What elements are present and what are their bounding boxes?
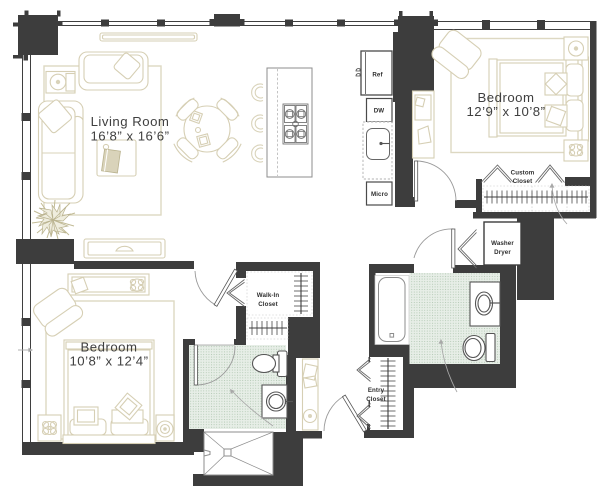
svg-text:DW: DW [374, 108, 385, 115]
svg-text:10’8” x 12’4”: 10’8” x 12’4” [69, 354, 148, 369]
svg-text:12’9” x 10’8”: 12’9” x 10’8” [466, 104, 545, 119]
svg-text:Dryer: Dryer [494, 249, 511, 256]
svg-text:16’8” x 16’6”: 16’8” x 16’6” [90, 129, 169, 144]
svg-text:Living Room: Living Room [91, 114, 170, 129]
svg-text:Closet: Closet [513, 178, 533, 185]
svg-text:Closet: Closet [366, 396, 386, 403]
svg-text:Entry: Entry [368, 387, 385, 394]
svg-text:Walk-In: Walk-In [257, 292, 280, 299]
svg-text:Micro: Micro [371, 191, 388, 198]
svg-text:Washer: Washer [491, 240, 514, 247]
svg-text:Custom: Custom [511, 170, 535, 177]
svg-text:Closet: Closet [258, 301, 278, 308]
svg-text:Bedroom: Bedroom [80, 340, 137, 355]
svg-text:Ref: Ref [372, 72, 383, 79]
svg-text:Bedroom: Bedroom [477, 90, 534, 105]
